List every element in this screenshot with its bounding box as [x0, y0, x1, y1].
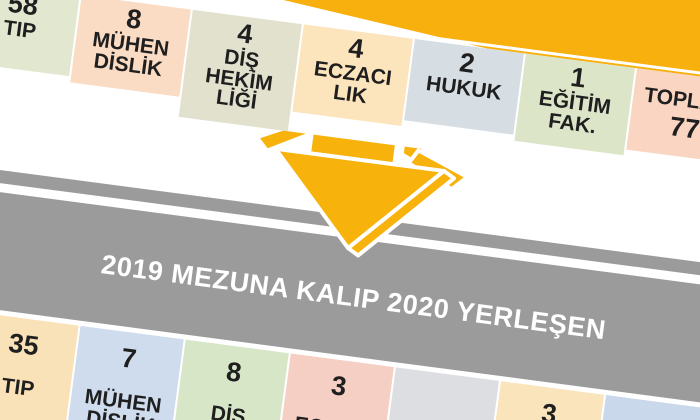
cell-orange-bottom-value: 3 — [496, 393, 603, 420]
slide-canvas: 2019 MEZUNA KALIP 2020 YERLEŞEN 58 TIP 8… — [0, 0, 700, 420]
cell-blue-bottom-value — [604, 407, 700, 420]
cell-dishekim-bottom-value: 8 — [180, 352, 287, 394]
cell-muhendislik-bottom-label: MÜHEN DİSLİK — [67, 386, 175, 420]
cell-muhendislik-bottom-value: 7 — [75, 338, 182, 380]
cell-eczaci-bottom-value: 3 — [285, 365, 392, 407]
cell-toplam-value: 77 — [628, 107, 700, 149]
cell-dishekimligi: 4 DİŞ HEKİM LİĞİ — [179, 10, 302, 131]
cell-eczaci-bottom-label: ECZACI — [280, 413, 386, 420]
cell-tip-bottom-value: 35 — [0, 324, 77, 366]
cell-tip-bottom: 35 TIP — [0, 312, 79, 420]
cell-tip: 58 TIP — [0, 0, 80, 76]
cell-eczacilik: 4 ECZACI LIK — [292, 24, 413, 125]
cell-tip-bottom-label: TIP — [0, 372, 71, 406]
cell-hukuk: 2 HUKUK — [404, 39, 524, 135]
rotated-stage: 2019 MEZUNA KALIP 2020 YERLEŞEN 58 TIP 8… — [0, 0, 700, 420]
cell-muhendislik: 8 MÜHEN DİSLİK — [70, 0, 191, 96]
cell-toplam: TOPLAM 77 — [626, 68, 700, 164]
cell-egitim: 1 EĞİTİM FAK. — [514, 54, 635, 155]
cell-gray-bottom-value — [394, 379, 497, 393]
cell-gray-bottom-label — [392, 399, 495, 413]
cell-dishekim-bottom-label: DİŞ HEKİM — [173, 399, 281, 420]
cell-dishekimligi-label: DİŞ HEKİM LİĞİ — [181, 43, 298, 117]
